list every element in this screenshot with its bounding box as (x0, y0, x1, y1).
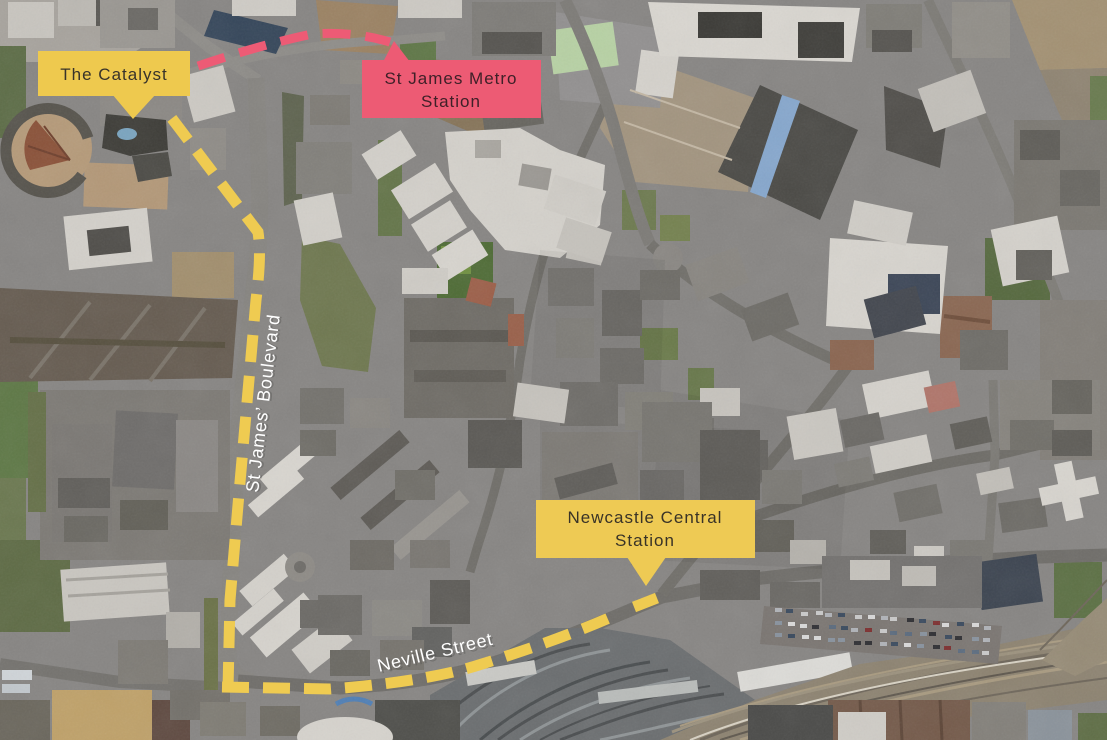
svg-text:The Catalyst: The Catalyst (60, 65, 167, 84)
svg-text:St James Metro: St James Metro (384, 69, 517, 88)
svg-text:Station: Station (615, 531, 675, 550)
svg-text:Station: Station (421, 92, 481, 111)
svg-text:Newcastle Central: Newcastle Central (568, 508, 723, 527)
